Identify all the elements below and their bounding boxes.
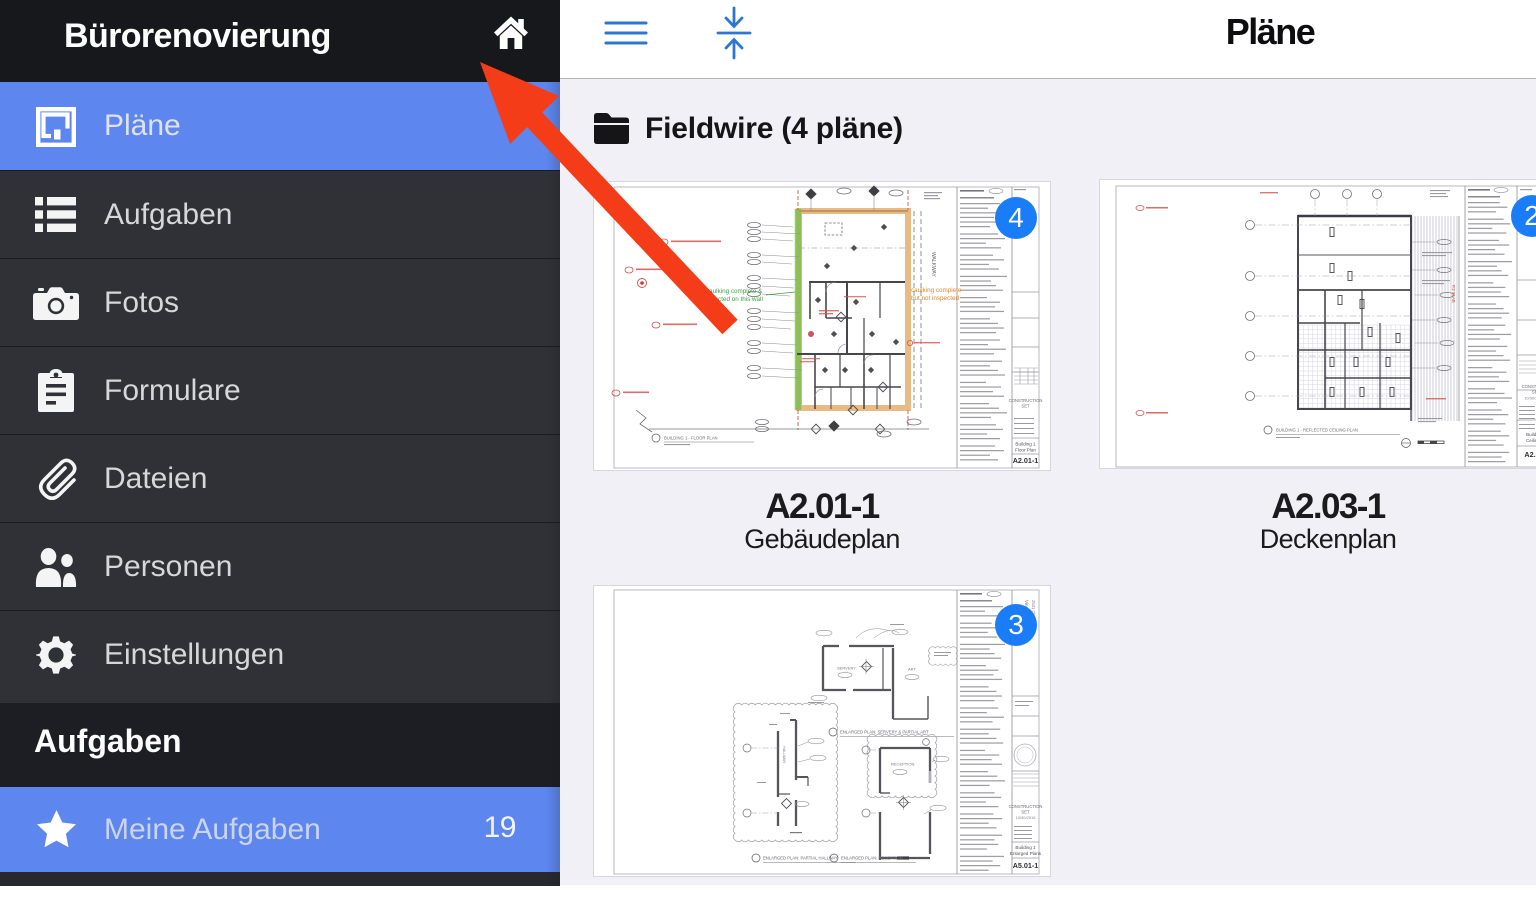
svg-text:Buildin: Buildin (1526, 432, 1536, 437)
svg-text:SERVERY: SERVERY (837, 666, 856, 671)
svg-text:SET: SET (1021, 810, 1030, 815)
svg-text:Building 1: Building 1 (1015, 845, 1036, 850)
svg-text:Building 1: Building 1 (1015, 442, 1036, 447)
svg-text:caulking complete: caulking complete (911, 287, 962, 294)
svg-text:Enlarged Plans: Enlarged Plans (1010, 851, 1042, 856)
svg-text:ENLARGED PLAN: PARTIAL HALLWA: ENLARGED PLAN: PARTIAL HALLWAY (763, 856, 838, 861)
svg-text:but not inspected: but not inspected (911, 295, 959, 302)
svg-text:Ceiling: Ceiling (1526, 438, 1536, 443)
svg-text:10/30/20: 10/30/20 (1524, 396, 1536, 401)
svg-text:Floor Plan: Floor Plan (1015, 448, 1036, 453)
svg-text:ENLARGED PLAN: RECEPTION: ENLARGED PLAN: RECEPTION (841, 856, 903, 861)
svg-text:SET: SET (1021, 404, 1030, 409)
svg-text:HALLWAY: HALLWAY (782, 746, 786, 764)
svg-text:BUILDING 1 - FLOOR PLAN: BUILDING 1 - FLOOR PLAN (664, 436, 718, 441)
svg-text:WALKWAY: WALKWAY (930, 252, 936, 277)
svg-text:10/30/2016: 10/30/2016 (1015, 815, 1036, 820)
svg-text:RECEPTION: RECEPTION (891, 762, 914, 767)
svg-text:A2.01-1: A2.01-1 (1013, 456, 1039, 465)
svg-text:CONSTRUCTION: CONSTRUCTION (1009, 398, 1043, 403)
svg-text:ENLARGED PLAN: SERVERY & PART: ENLARGED PLAN: SERVERY & PARTIAL ART (840, 730, 929, 735)
svg-text:A5.01-1: A5.01-1 (1013, 861, 1039, 870)
svg-text:caulking complete &: caulking complete & (706, 288, 763, 295)
svg-text:P.2 SLAB: P.2 SLAB (1451, 285, 1456, 303)
svg-text:inspected on this wall: inspected on this wall (703, 296, 763, 303)
svg-text:SET: SET (1532, 390, 1536, 395)
svg-text:ART: ART (908, 667, 916, 672)
svg-text:A2.03: A2.03 (1524, 450, 1536, 459)
svg-text:CONSTRU: CONSTRU (1522, 384, 1536, 389)
svg-text:BUILDING 1 - REFLECTED CEILING: BUILDING 1 - REFLECTED CEILING PLAN (1276, 428, 1358, 433)
svg-text:CONSTRUCTION: CONSTRUCTION (1009, 804, 1043, 809)
